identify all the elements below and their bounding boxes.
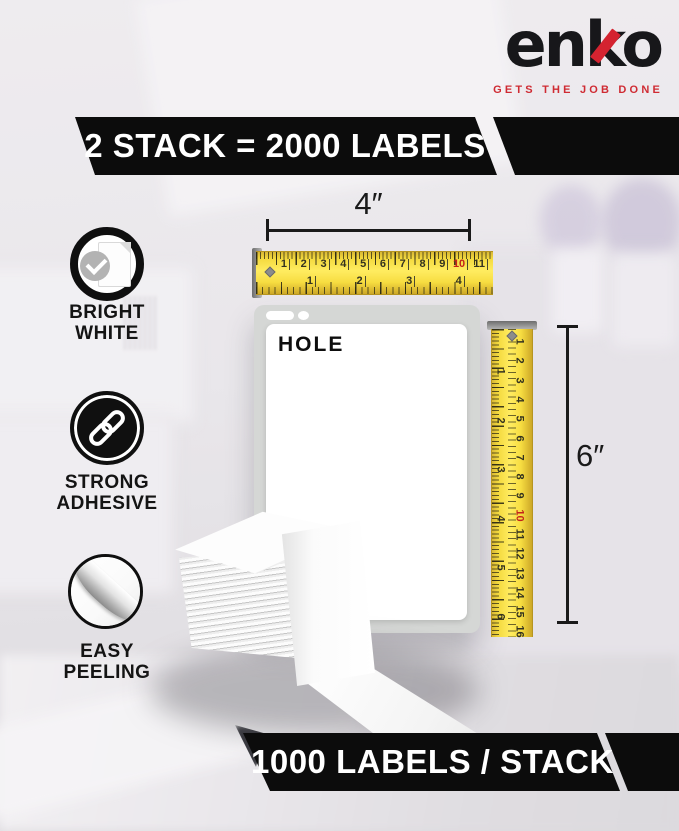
feature-line: BRIGHT xyxy=(69,302,145,323)
ruler-number: 7 xyxy=(393,259,409,270)
ruler-number: 11 xyxy=(514,528,525,542)
height-dimension-line xyxy=(566,326,569,623)
bottom-banner: 1000 LABELS / STACK xyxy=(0,733,679,791)
ruler-number: 4 xyxy=(333,259,349,270)
ruler-number: 15 xyxy=(514,605,525,619)
backing-hole-round xyxy=(298,311,309,320)
ruler-number: 6 xyxy=(495,610,506,624)
ruler-number: 8 xyxy=(514,470,525,484)
top-banner: 2 STACK = 2000 LABELS xyxy=(0,117,679,175)
ruler-number: 3 xyxy=(399,276,415,287)
brand-logo: enko GETS THE JOB DONE xyxy=(463,8,663,98)
peeling-label-icon xyxy=(68,554,143,629)
paper-fold-glyph xyxy=(119,242,131,254)
ruler-number: 9 xyxy=(514,489,525,503)
width-dimension-line xyxy=(267,229,470,232)
dimension-endcap xyxy=(557,325,578,328)
ruler-number: 5 xyxy=(495,561,506,575)
label-corner-text: HOLE xyxy=(278,333,344,357)
dimension-endcap xyxy=(266,219,269,241)
ruler-number: 5 xyxy=(514,412,525,426)
ruler-number: 2 xyxy=(350,276,366,287)
brand-name: enko xyxy=(505,10,661,80)
ruler-number: 6 xyxy=(373,259,389,270)
feature-line: STRONG xyxy=(65,472,149,493)
chain-link-icon xyxy=(70,391,144,465)
backing-hole-pill xyxy=(266,311,294,320)
ruler-number: 3 xyxy=(514,373,525,387)
ruler-number: 2 xyxy=(514,354,525,368)
ruler-number: 4 xyxy=(449,276,465,287)
vertical-tape-measure: 12345678910111213141516 123456 xyxy=(491,329,533,637)
paper-check-icon xyxy=(70,227,144,301)
horizontal-tape-measure: 1234567891011 1234 xyxy=(256,251,493,295)
feature-line: WHITE xyxy=(75,323,139,344)
width-dimension-label: 4″ xyxy=(267,186,470,222)
ruler-number: 8 xyxy=(413,259,429,270)
height-dimension-label: 6″ xyxy=(576,438,604,474)
feature-line: PEELING xyxy=(64,662,151,683)
ruler-number: 4 xyxy=(514,392,525,406)
brand-tagline: GETS THE JOB DONE xyxy=(463,84,663,96)
ruler-number: 12 xyxy=(514,547,525,561)
ruler-number: 2 xyxy=(294,259,310,270)
dimension-endcap xyxy=(468,219,471,241)
feature-label-bright-white: BRIGHT WHITE xyxy=(12,302,202,344)
ruler-number: 16 xyxy=(514,624,525,638)
ruler-number: 1 xyxy=(274,259,290,270)
ruler-number: 3 xyxy=(314,259,330,270)
ruler-number: 1 xyxy=(300,276,316,287)
ruler-number: 1 xyxy=(495,365,506,379)
ruler-number: 6 xyxy=(514,431,525,445)
dimension-endcap xyxy=(557,621,578,624)
chain-links-glyph xyxy=(76,397,138,459)
ruler-number: 4 xyxy=(495,512,506,526)
ruler-number: 11 xyxy=(472,259,488,270)
ruler-number: 7 xyxy=(514,450,525,464)
ruler-number: 10 xyxy=(452,259,468,270)
top-banner-text: 2 STACK = 2000 LABELS xyxy=(80,117,490,175)
feature-line: EASY xyxy=(80,641,134,662)
ruler-number: 3 xyxy=(495,463,506,477)
ruler-number: 5 xyxy=(353,259,369,270)
ruler-number: 14 xyxy=(514,585,525,599)
ruler-number: 2 xyxy=(495,414,506,428)
product-infographic: enko GETS THE JOB DONE 2 STACK = 2000 LA… xyxy=(0,0,679,831)
ruler-number: 13 xyxy=(514,566,525,580)
ruler-number: 9 xyxy=(432,259,448,270)
bottom-banner-text: 1000 LABELS / STACK xyxy=(251,733,611,791)
checkmark-icon xyxy=(80,251,110,281)
ruler-number: 10 xyxy=(514,508,525,522)
